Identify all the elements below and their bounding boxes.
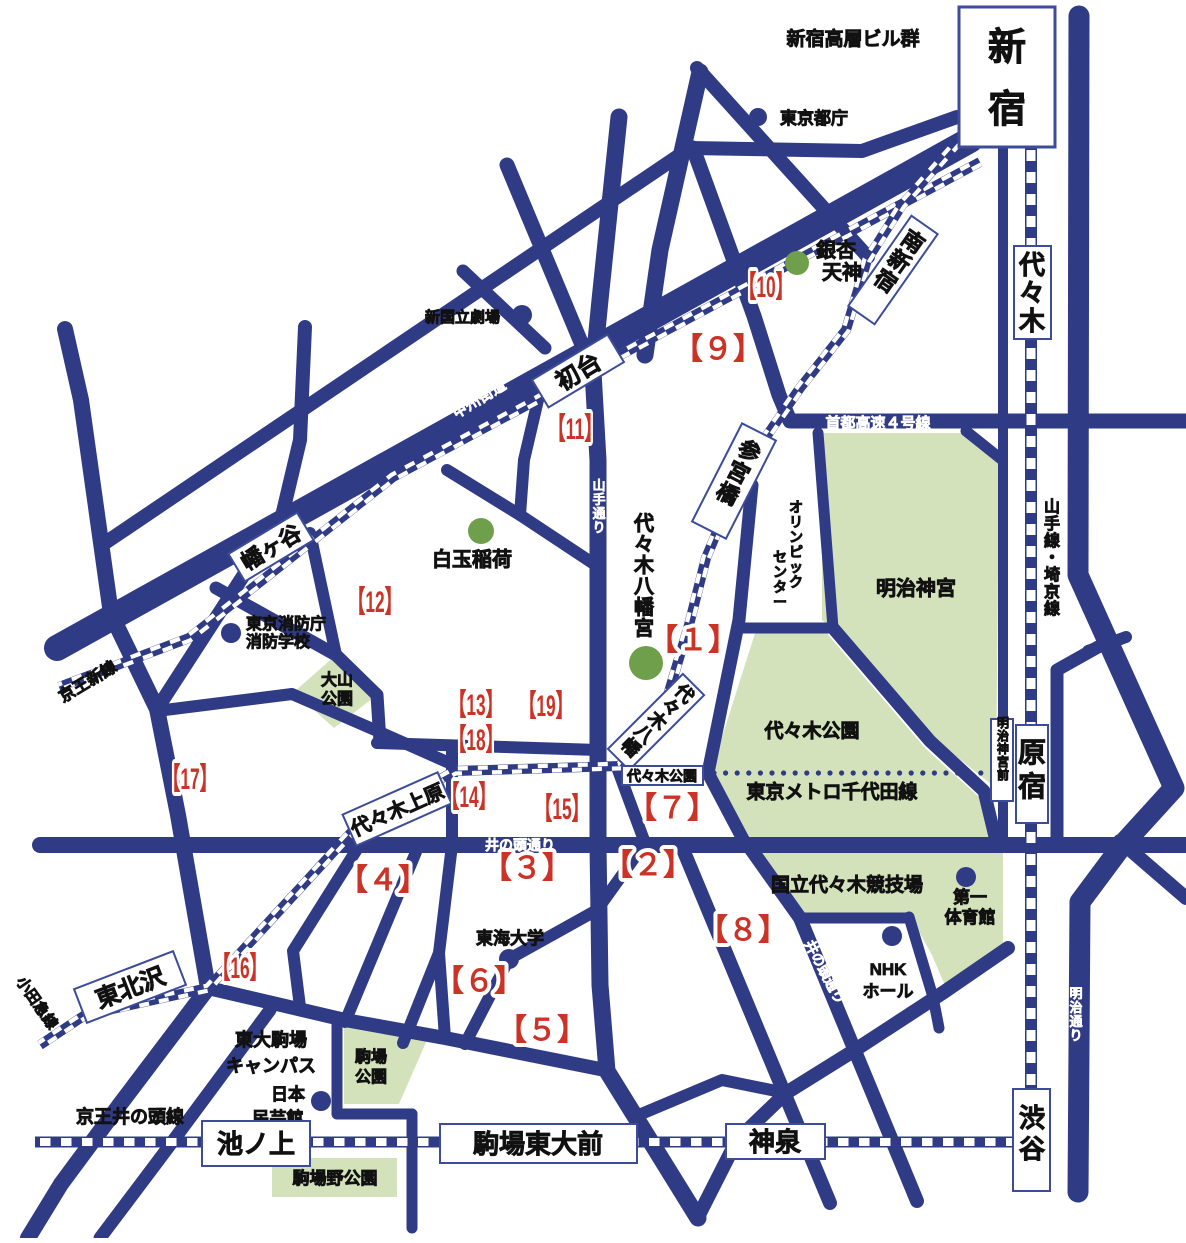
svg-text:代々木公園: 代々木公園 — [626, 768, 697, 784]
svg-text:・: ・ — [1044, 550, 1060, 567]
svg-text:【５】: 【５】 — [497, 1014, 587, 1047]
svg-text:々: 々 — [634, 533, 654, 556]
svg-text:ッ: ッ — [789, 559, 803, 575]
svg-text:り: り — [592, 520, 605, 535]
svg-text:駒場野公園: 駒場野公園 — [293, 1168, 378, 1188]
svg-text:谷: 谷 — [1019, 1134, 1046, 1164]
svg-text:幡: 幡 — [634, 596, 655, 619]
svg-text:消防学校: 消防学校 — [246, 632, 311, 651]
svg-text:【12】: 【12】 — [348, 586, 402, 619]
svg-text:手: 手 — [1044, 514, 1060, 533]
svg-text:タ: タ — [773, 579, 787, 595]
svg-text:渋: 渋 — [1019, 1103, 1045, 1133]
svg-text:神泉: 神泉 — [749, 1127, 802, 1157]
svg-text:公園: 公園 — [321, 690, 353, 708]
svg-text:埼: 埼 — [1044, 565, 1060, 584]
svg-text:手: 手 — [592, 492, 605, 507]
svg-text:【９】: 【９】 — [673, 333, 763, 366]
svg-text:【14】: 【14】 — [442, 781, 496, 814]
svg-text:り: り — [1069, 1028, 1082, 1043]
svg-text:東京消防庁: 東京消防庁 — [246, 614, 326, 633]
svg-text:体育館: 体育館 — [945, 907, 996, 927]
svg-text:池ノ上: 池ノ上 — [217, 1129, 295, 1159]
svg-text:リ: リ — [789, 514, 803, 530]
svg-text:原: 原 — [1018, 737, 1046, 768]
svg-text:【19】: 【19】 — [519, 690, 573, 723]
svg-text:代々木公園: 代々木公園 — [763, 719, 859, 742]
svg-text:京: 京 — [1044, 582, 1060, 601]
svg-text:ピ: ピ — [789, 544, 803, 560]
svg-text:線: 線 — [1044, 531, 1060, 550]
svg-text:【18】: 【18】 — [449, 724, 503, 757]
svg-text:駒場東大前: 駒場東大前 — [473, 1129, 603, 1159]
svg-text:山: 山 — [1044, 498, 1060, 516]
svg-text:明: 明 — [997, 716, 1009, 730]
svg-text:京王井の頭線: 京王井の頭線 — [76, 1106, 184, 1127]
svg-text:【10】: 【10】 — [739, 271, 793, 304]
svg-text:大山: 大山 — [321, 670, 353, 689]
svg-text:新宿高層ビル群: 新宿高層ビル群 — [786, 27, 919, 50]
svg-text:【13】: 【13】 — [449, 689, 503, 722]
svg-text:【３】: 【３】 — [482, 852, 572, 885]
svg-text:【15】: 【15】 — [535, 793, 589, 826]
svg-text:キャンパス: キャンパス — [226, 1056, 316, 1076]
svg-text:ン: ン — [773, 564, 787, 580]
svg-text:第一: 第一 — [953, 887, 987, 907]
svg-text:セ: セ — [773, 549, 787, 565]
svg-text:明治神宮: 明治神宮 — [876, 576, 956, 600]
svg-text:々: 々 — [1019, 278, 1045, 308]
svg-text:【17】: 【17】 — [163, 763, 217, 796]
svg-text:東京メトロ千代田線: 東京メトロ千代田線 — [746, 780, 917, 803]
svg-text:天神: 天神 — [822, 260, 862, 284]
svg-text:【６】: 【６】 — [434, 965, 524, 998]
svg-text:通: 通 — [592, 506, 605, 521]
svg-text:【２】: 【２】 — [603, 849, 693, 882]
svg-text:八: 八 — [634, 576, 655, 598]
svg-text:通: 通 — [1069, 1014, 1082, 1029]
svg-text:治: 治 — [997, 728, 1009, 743]
svg-text:【11】: 【11】 — [548, 413, 602, 446]
svg-text:山: 山 — [592, 478, 605, 493]
svg-text:首都高速４号線: 首都高速４号線 — [825, 414, 930, 432]
svg-text:新: 新 — [988, 27, 1026, 69]
svg-text:代: 代 — [1018, 250, 1045, 280]
svg-text:前: 前 — [997, 767, 1009, 782]
svg-text:宿: 宿 — [1018, 770, 1046, 802]
svg-text:神: 神 — [997, 741, 1009, 756]
svg-text:木: 木 — [1018, 306, 1045, 336]
svg-text:日本: 日本 — [271, 1084, 305, 1104]
svg-text:【16】: 【16】 — [213, 952, 267, 985]
svg-text:東海大学: 東海大学 — [476, 928, 544, 948]
svg-text:【４】: 【４】 — [338, 864, 428, 897]
svg-text:オ: オ — [789, 499, 803, 515]
svg-text:ー: ー — [773, 594, 787, 610]
svg-text:東京都庁: 東京都庁 — [780, 108, 848, 128]
svg-text:ホール: ホール — [863, 982, 914, 1001]
svg-text:【８】: 【８】 — [698, 914, 788, 947]
svg-text:明: 明 — [1069, 986, 1082, 1001]
svg-text:ク: ク — [789, 574, 803, 590]
svg-text:宮: 宮 — [997, 754, 1009, 769]
svg-text:宿: 宿 — [988, 89, 1026, 131]
svg-text:東大駒場: 東大駒場 — [235, 1029, 307, 1050]
svg-text:代: 代 — [633, 512, 654, 535]
svg-text:銀杏: 銀杏 — [816, 238, 856, 262]
svg-text:線: 線 — [1044, 599, 1060, 618]
svg-text:木: 木 — [633, 553, 655, 577]
svg-text:【１】: 【１】 — [648, 624, 738, 657]
svg-text:公園: 公園 — [355, 1068, 387, 1086]
svg-text:ン: ン — [789, 529, 803, 545]
svg-text:【７】: 【７】 — [627, 792, 717, 825]
svg-text:駒場: 駒場 — [355, 1047, 387, 1066]
svg-text:新国立劇場: 新国立劇場 — [425, 308, 500, 326]
svg-text:白玉稲荷: 白玉稲荷 — [432, 547, 512, 571]
svg-text:井の頭通り: 井の頭通り — [485, 837, 555, 853]
svg-text:NHK: NHK — [870, 960, 908, 979]
svg-text:国立代々木競技場: 国立代々木競技場 — [771, 873, 923, 896]
svg-text:治: 治 — [1069, 1000, 1082, 1015]
